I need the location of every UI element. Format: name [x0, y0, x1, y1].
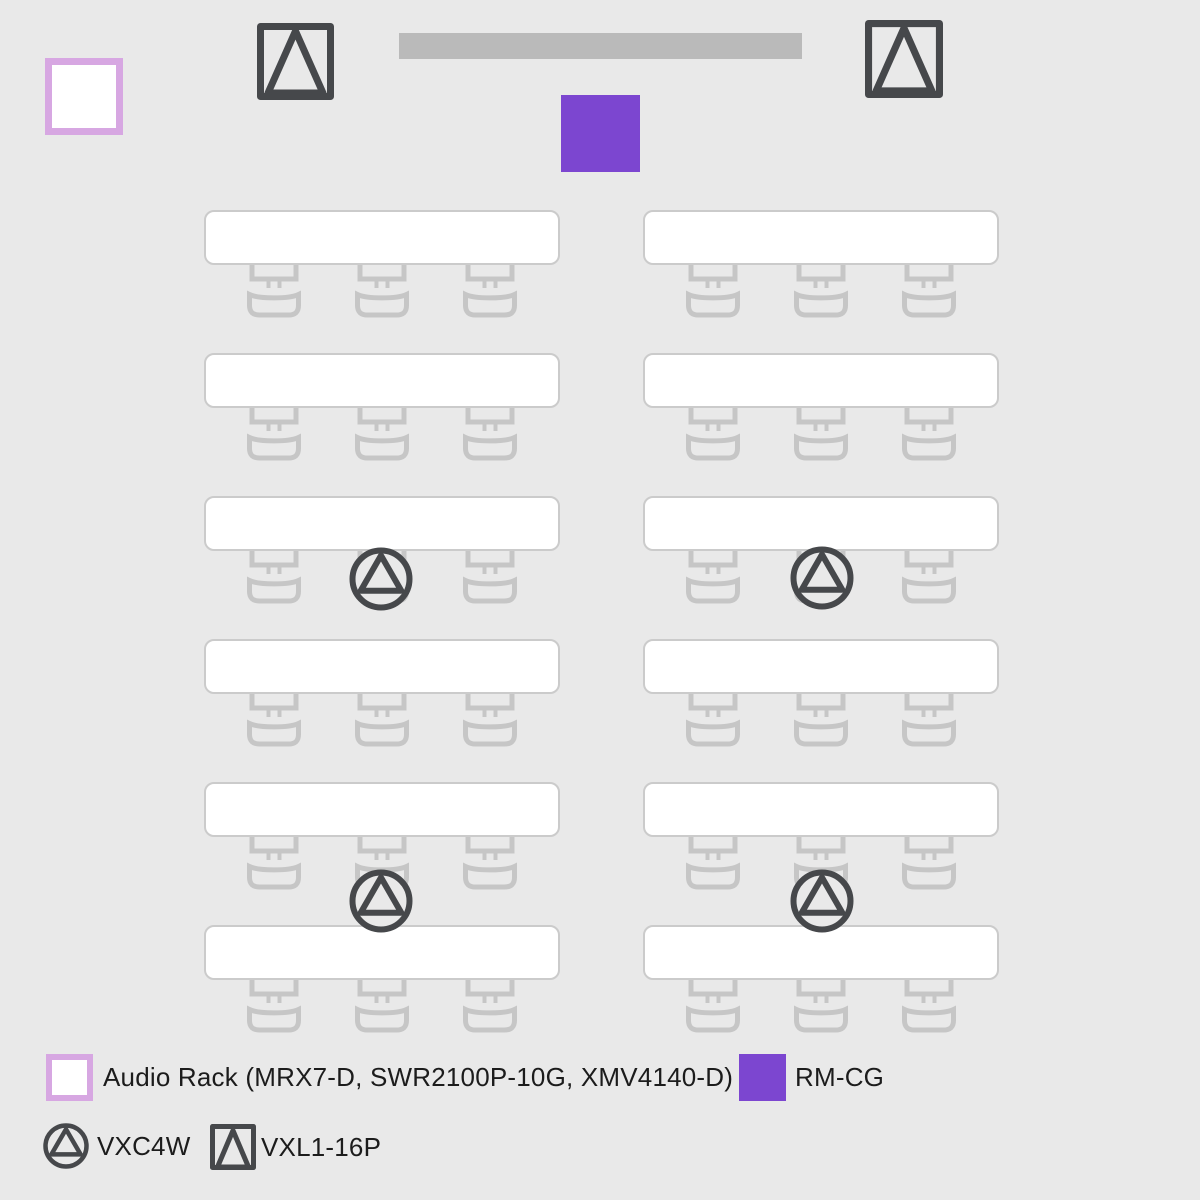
audio-rack-swatch [46, 1054, 93, 1101]
vxc4w-ceiling-speaker-icon [348, 868, 414, 934]
chair [793, 979, 849, 1037]
chair [462, 836, 518, 894]
vxl1-16p-legend-icon [210, 1124, 256, 1170]
table [643, 496, 999, 551]
chair [901, 550, 957, 608]
chair [462, 264, 518, 322]
chair [354, 264, 410, 322]
chair [685, 693, 741, 751]
table [643, 782, 999, 837]
chair [901, 979, 957, 1037]
audio-rack [45, 58, 123, 135]
vxl1-16p-speaker-icon [257, 23, 334, 100]
chair [685, 979, 741, 1037]
table [643, 210, 999, 265]
chair [462, 550, 518, 608]
chair [793, 264, 849, 322]
floor-plan: Audio Rack (MRX7-D, SWR2100P-10G, XMV414… [0, 0, 1200, 1200]
vxc4w-ceiling-speaker-icon [348, 546, 414, 612]
chair [901, 693, 957, 751]
rm-cg-swatch [739, 1054, 786, 1101]
table [204, 353, 560, 408]
vxl1-16p-speaker-icon [865, 20, 943, 98]
table [643, 639, 999, 694]
vxc4w-label: VXC4W [97, 1122, 190, 1170]
chair [685, 407, 741, 465]
chair [685, 550, 741, 608]
rm-cg-device [561, 95, 640, 172]
chair [901, 264, 957, 322]
vxl1-16p-label: VXL1-16P [261, 1124, 381, 1170]
vxc4w-legend-icon [42, 1122, 90, 1170]
chair [685, 264, 741, 322]
chair [462, 979, 518, 1037]
chair [354, 979, 410, 1037]
table [204, 782, 560, 837]
chair [901, 407, 957, 465]
screen-bar [399, 33, 802, 59]
chair [462, 407, 518, 465]
chair [793, 693, 849, 751]
vxc4w-ceiling-speaker-icon [789, 868, 855, 934]
audio-rack-label: Audio Rack (MRX7-D, SWR2100P-10G, XMV414… [103, 1054, 733, 1101]
table [643, 353, 999, 408]
chair [354, 693, 410, 751]
table [204, 496, 560, 551]
chair [793, 407, 849, 465]
chair [901, 836, 957, 894]
chair [462, 693, 518, 751]
chair [246, 979, 302, 1037]
chair [246, 693, 302, 751]
rm-cg-label: RM-CG [795, 1054, 884, 1101]
vxc4w-ceiling-speaker-icon [789, 545, 855, 611]
table [204, 210, 560, 265]
chair [246, 264, 302, 322]
chair [246, 550, 302, 608]
chair [685, 836, 741, 894]
chair [246, 407, 302, 465]
chair [246, 836, 302, 894]
chair [354, 407, 410, 465]
table [204, 639, 560, 694]
